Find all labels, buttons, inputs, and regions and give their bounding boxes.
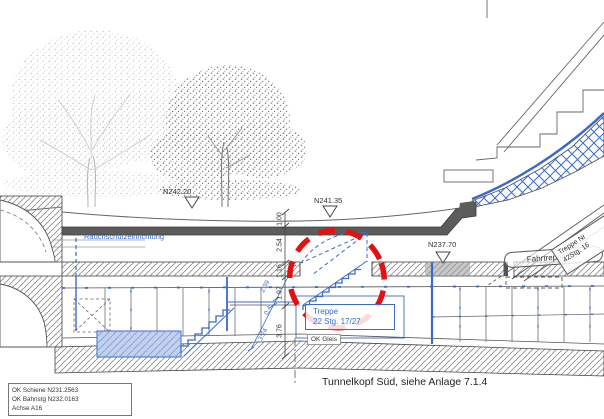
terrain-line (0, 207, 460, 221)
glass-roof (458, 113, 604, 216)
dim-vertical-2: 2.54 (277, 238, 284, 252)
datum-line-rail: OK Schiene N231.2563 (12, 386, 128, 395)
elevation-triangle-icon (323, 206, 337, 217)
center-stair-label-box: Treppe 22 Stg. 17/27 (305, 304, 395, 330)
section-title: Tunnelkopf Süd, siehe Anlage 7.1.4 (322, 376, 487, 388)
dim-vertical-1: 1.00 (277, 212, 284, 226)
datum-line-platform: OK Bahnstg N232.0163 (12, 395, 128, 404)
elevation-label-n242: N242.20 (163, 188, 191, 196)
center-stair-line1: Treppe (313, 307, 394, 317)
center-stair-line2: 22 Stg. 17/27 (313, 317, 394, 327)
datum-info-box: OK Schiene N231.2563 OK Bahnstg N232.016… (8, 383, 132, 416)
dim-vertical-3: 1.16 (277, 264, 284, 278)
smoke-protection-label: Rauchschutzeinrichtung (84, 233, 164, 241)
dim-vertical-4: 1.97 (277, 286, 284, 300)
drawing-linework (0, 0, 604, 419)
ok-gleis-label: OK Gleis (307, 334, 341, 345)
elevation-label-n237: N237.70 (428, 241, 456, 249)
platform (97, 331, 181, 357)
tunnel-section-drawing: N242.20 N241.35 N237.70 Rauchschutzeinri… (0, 0, 604, 419)
datum-line-axis: Achse A16 (12, 404, 128, 413)
elevation-triangle-icon (185, 197, 199, 208)
elevation-label-n241: N241.35 (314, 197, 342, 205)
elevation-triangle-icon (436, 252, 450, 263)
track-cover-slab (62, 202, 476, 235)
dim-vertical-5: 3.76 (277, 324, 284, 338)
